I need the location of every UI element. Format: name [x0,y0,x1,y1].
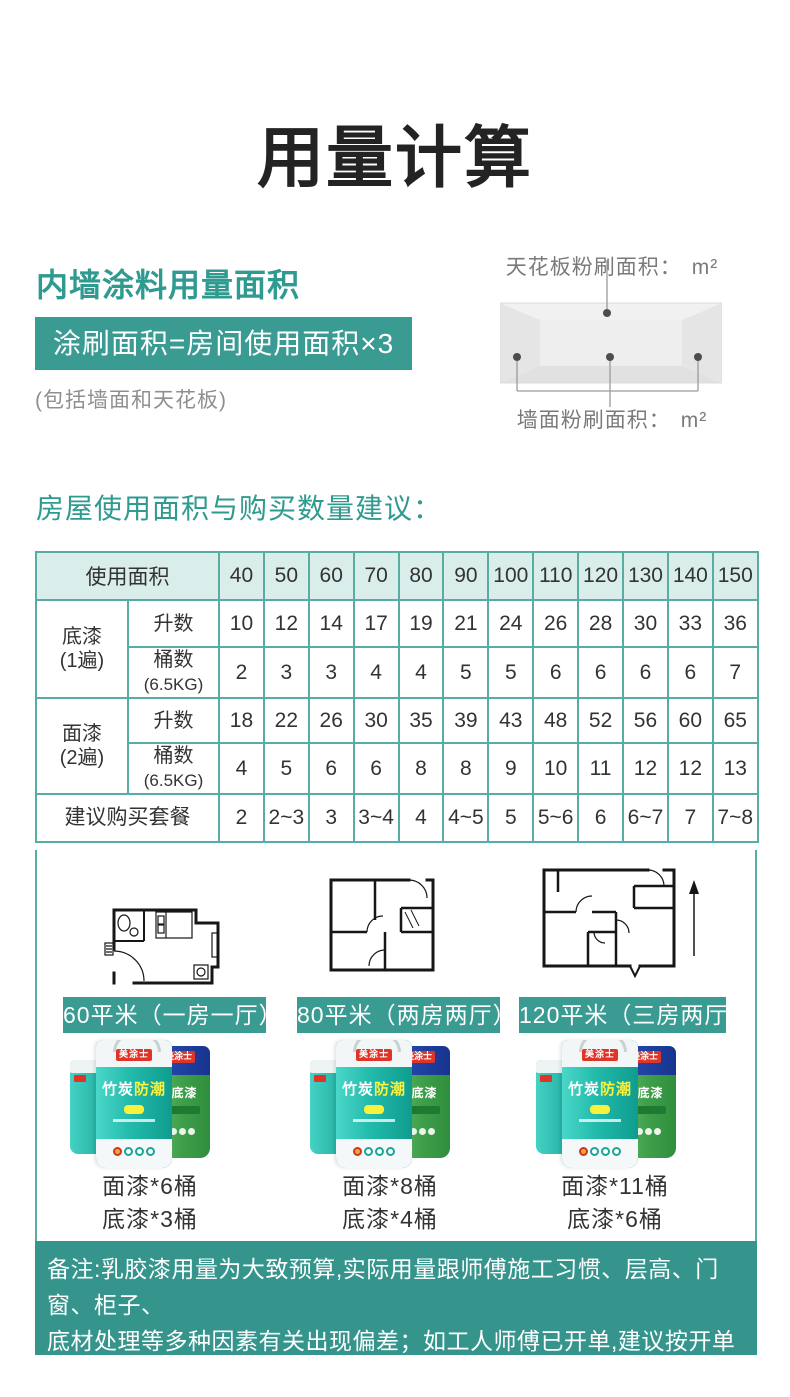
topcoat-bucket-icon: 美涂士 竹炭防潮 [562,1040,638,1168]
topcoat-bucket-icon: 美涂士 竹炭防潮 [96,1040,172,1168]
primer-group-cell: 底漆(1遍) [36,600,128,698]
remark-line-2: 底材处理等多种因素有关出现偏差；如工人师傅已开单,建议按开单数量购买。 [47,1323,745,1395]
formula-note: (包括墙面和天花板) [35,384,227,414]
bucket-count-60: 面漆*6桶底漆*3桶 [50,1170,250,1236]
page-canvas: 用量计算 内墙涂料用量面积 涂刷面积=房间使用面积×3 (包括墙面和天花板) 天… [0,0,790,1397]
bucket-group-60: 美涂士 保底漆 美涂士 竹炭防潮 [70,1040,210,1168]
section1-heading: 内墙涂料用量面积 [36,260,300,306]
liters-label-cell: 升数 [128,600,219,647]
plan-bar-60: 60平米（一房一厅） [63,997,266,1033]
bucket-count-120: 面漆*11桶底漆*6桶 [515,1170,715,1236]
primer-liters-row: 底漆(1遍) 升数 10 12 14 17 19 21 24 26 28 30 … [36,600,758,647]
bucket-count-80: 面漆*8桶底漆*4桶 [290,1170,490,1236]
floorplan-120sqm [538,862,706,988]
bucket-group-120: 美涂士 保底漆 美涂士 竹炭防潮 [536,1040,676,1168]
primer-buckets-row: 桶数(6.5KG) 2 3 3 4 4 5 5 6 6 6 6 7 [36,647,758,698]
plan-bar-80: 80平米（两房两厅） [297,997,500,1033]
formula-box: 涂刷面积=房间使用面积×3 [35,317,412,370]
topcoat-group-cell: 面漆(2遍) [36,698,128,794]
plan-bar-120: 120平米（三房两厅） [519,997,726,1033]
bucket-group-80: 美涂士 保底漆 美涂士 竹炭防潮 [310,1040,450,1168]
area-header-cell: 使用面积 [36,552,219,600]
usage-table: 使用面积 40 50 60 70 80 90 100 110 120 130 1… [35,551,759,843]
buckets-label-cell: 桶数(6.5KG) [128,743,219,794]
wall-label-text: 墙面粉刷面积： [517,409,671,432]
topcoat-bucket-icon: 美涂士 竹炭防潮 [336,1040,412,1168]
liters-label-cell: 升数 [128,698,219,743]
wall-unit: m² [681,409,708,432]
north-arrow-icon [689,880,699,956]
buckets-label-cell: 桶数(6.5KG) [128,647,219,698]
room-diagram-illustration [500,250,722,418]
section2-heading: 房屋使用面积与购买数量建议： [36,487,442,527]
table-header-row: 使用面积 40 50 60 70 80 90 100 110 120 130 1… [36,552,758,600]
floorplan-60sqm [98,903,228,991]
remark-box: 备注:乳胶漆用量为大致预算,实际用量跟师傅施工习惯、层高、门窗、柜子、 底材处理… [35,1241,757,1355]
remark-line-1: 备注:乳胶漆用量为大致预算,实际用量跟师傅施工习惯、层高、门窗、柜子、 [47,1251,745,1323]
page-title: 用量计算 [0,104,790,201]
topcoat-liters-row: 面漆(2遍) 升数 18 22 26 30 35 39 43 48 52 56 … [36,698,758,743]
suggest-label-cell: 建议购买套餐 [36,794,219,842]
floorplan-80sqm [323,870,441,978]
topcoat-buckets-row: 桶数(6.5KG) 4 5 6 6 8 8 9 10 11 12 12 13 [36,743,758,794]
wall-area-label: 墙面粉刷面积：m² [492,404,732,434]
suggest-row: 建议购买套餐 2 2~3 3 3~4 4 4~5 5 5~6 6 6~7 7 7… [36,794,758,842]
